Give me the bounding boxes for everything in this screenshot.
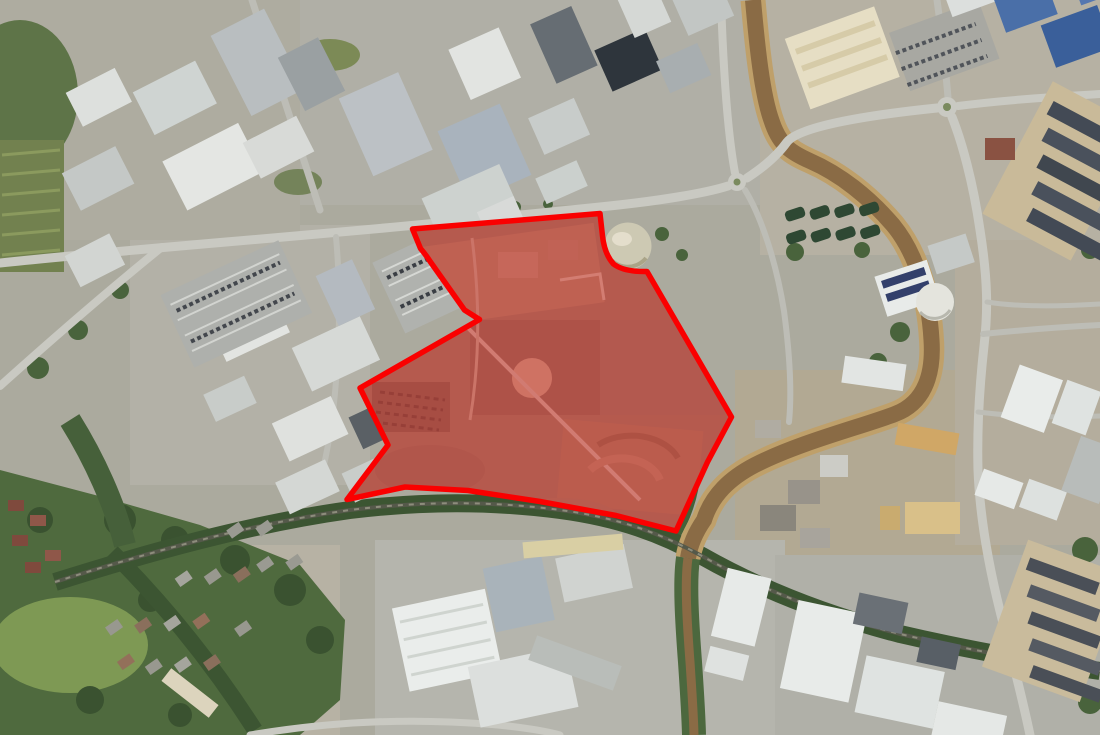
- aerial-map: [0, 0, 1100, 735]
- roundabout-east-island: [943, 103, 951, 111]
- red-roof-building: [985, 138, 1015, 160]
- white-tank: [916, 283, 954, 321]
- screenshot-root: [0, 0, 1100, 735]
- roundabout-west-island: [734, 179, 741, 186]
